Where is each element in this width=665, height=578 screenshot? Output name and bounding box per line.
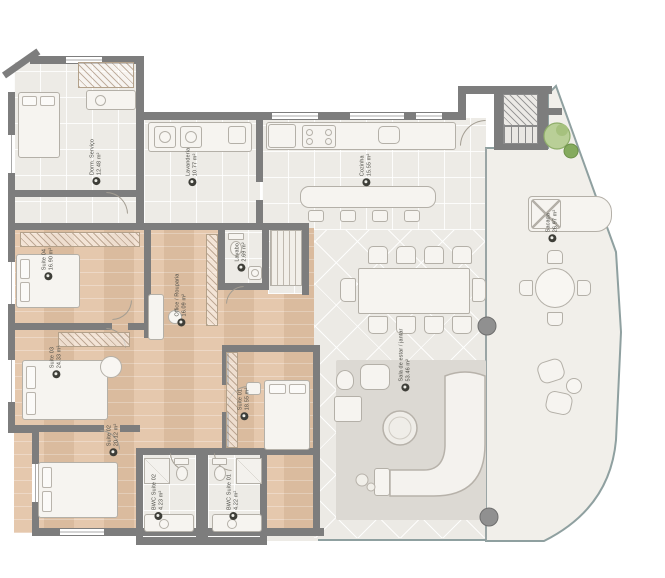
room-marker-icon xyxy=(44,272,52,280)
room-marker-icon xyxy=(154,512,162,520)
floor-plan-canvas: Dorm. Serviço12.48 m² Lavanderia10.77 m²… xyxy=(0,0,665,578)
plant xyxy=(556,124,568,136)
room-marker-icon xyxy=(229,512,237,520)
room-marker-icon xyxy=(401,383,409,391)
room-marker-icon xyxy=(188,178,196,186)
room-area: 10.77 m² xyxy=(192,148,199,176)
room-area: 20.12 m² xyxy=(113,424,120,447)
room-name: Lavanderia xyxy=(185,148,192,176)
room-marker-icon xyxy=(548,234,556,242)
room-area: 16.90 m² xyxy=(48,248,55,271)
room-name: Sala de estar / jantar xyxy=(398,329,405,382)
room-name: Sacada xyxy=(545,210,552,233)
room-marker-icon xyxy=(237,264,245,272)
room-name: Dorm. Serviço xyxy=(89,139,96,175)
room-area: 4.23 m² xyxy=(158,474,165,510)
room-marker-icon xyxy=(92,177,100,185)
coffee-table xyxy=(383,411,417,445)
room-name: Cozinha xyxy=(359,154,366,177)
room-name: Lavabo xyxy=(234,242,241,261)
room-marker-icon xyxy=(177,318,185,326)
room-name: Suíte 01 xyxy=(237,388,244,411)
room-name: BWC Suíte 01 xyxy=(226,474,233,510)
room-marker-icon xyxy=(240,412,248,420)
room-area: 18.55 m² xyxy=(244,388,251,411)
room-marker-icon xyxy=(109,448,117,456)
room-name: Suíte 04 xyxy=(41,248,48,271)
room-area: 26.97 m² xyxy=(552,210,559,233)
room-area: 4.22 m² xyxy=(233,474,240,510)
floor-lamp xyxy=(356,474,368,486)
room-marker-icon xyxy=(362,178,370,186)
room-area: 53.46 m² xyxy=(405,329,412,382)
furniture-overlay xyxy=(0,0,665,578)
room-area: 15.55 m² xyxy=(366,154,373,177)
room-area: 16.09 m² xyxy=(181,274,188,317)
room-name: Suíte 02 xyxy=(106,424,113,447)
room-area: 12.48 m² xyxy=(96,139,103,175)
floor-lamp xyxy=(367,483,375,491)
room-area: 24.33 m² xyxy=(56,346,63,369)
room-area: 2.69 m² xyxy=(241,242,248,261)
pillar xyxy=(480,508,498,526)
pillar xyxy=(478,317,496,335)
room-name: BWC Suíte 02 xyxy=(151,474,158,510)
room-name: Suíte 03 xyxy=(49,346,56,369)
plant xyxy=(564,144,578,158)
room-name: Office / Rouparia xyxy=(174,274,181,317)
room-marker-icon xyxy=(52,370,60,378)
